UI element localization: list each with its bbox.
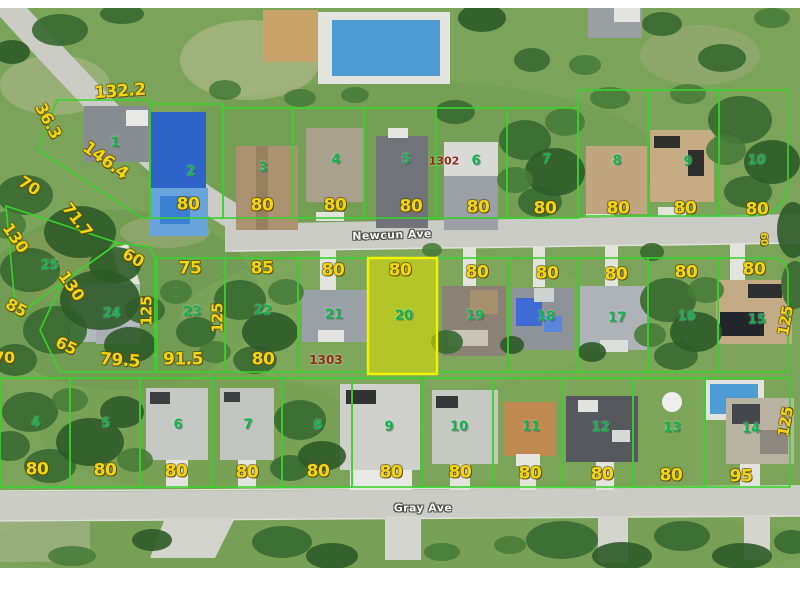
dimension-label: 79.5 [99, 351, 140, 371]
dimension-label: 80 [746, 202, 769, 219]
lot-number: 17 [608, 312, 626, 325]
lot-number: 22 [254, 305, 272, 318]
lot-number: 9 [384, 421, 393, 434]
dimension-label: 80 [591, 467, 614, 484]
lot-number: 7 [243, 419, 252, 432]
lot-number: 19 [466, 310, 484, 323]
lot-number: 20 [395, 310, 413, 323]
lot-number: 1 [110, 137, 119, 150]
dimension-label: 85 [3, 296, 29, 320]
lot-number: 14 [742, 423, 760, 436]
lot-number: 6 [173, 419, 182, 432]
dimension-label: 70 [16, 174, 43, 199]
dimension-label: 80 [536, 266, 559, 283]
dimension-label: 95 [730, 469, 753, 486]
dimension-label: 80 [236, 465, 259, 482]
lot-number: 24 [103, 308, 121, 321]
dimension-label: 80 [449, 465, 472, 482]
dimension-label: 80 [743, 262, 766, 279]
dimension-label: 80 [177, 197, 200, 214]
dimension-label: 80 [251, 198, 274, 215]
lot-number: 25 [41, 260, 59, 273]
dimension-label: 75 [179, 261, 202, 278]
dimension-label: 80 [534, 201, 557, 218]
lot-number: 5 [401, 154, 410, 167]
plat-number: 1303 [309, 354, 342, 366]
dimension-label: 125 [776, 305, 796, 337]
lot-number: 18 [537, 311, 555, 324]
dimension-label: 80 [389, 263, 412, 280]
lot-number: 9 [683, 156, 692, 169]
dimension-label: 36.3 [32, 101, 64, 142]
dimension-label: 70 [0, 350, 15, 366]
lot-number: 11 [522, 421, 540, 434]
dimension-label: 85 [251, 261, 274, 278]
lot-number: 6 [471, 155, 480, 168]
lot-number: 10 [450, 421, 468, 434]
aerial-parcel-photo: Newcun Ave Gray Ave 132.236.3146.47071.7… [0, 0, 800, 600]
street-name: Newcun Ave [352, 228, 432, 242]
lot-number: 2 [186, 166, 195, 179]
dimension-label: 80 [519, 466, 542, 483]
dimension-label: 80 [675, 265, 698, 282]
lot-number: 5 [101, 418, 110, 431]
dimension-label: 80 [400, 199, 423, 216]
dimension-label: 132.2 [94, 82, 146, 103]
dimension-label: 80 [380, 465, 403, 482]
dimension-label: 80 [165, 464, 188, 481]
lot-number: 8 [313, 420, 322, 433]
dimension-label: 91.5 [163, 352, 203, 369]
lot-number: 8 [612, 155, 621, 168]
dimension-label: 71.7 [59, 200, 95, 239]
dimension-label: 80 [607, 201, 630, 218]
dimension-label: 146.4 [79, 139, 130, 183]
lot-number: 23 [183, 306, 201, 319]
dimension-label: 130 [55, 268, 86, 303]
lot-number: 3 [258, 162, 267, 175]
dimension-label: 65 [53, 334, 79, 358]
street-name: Gray Ave [394, 503, 453, 514]
lot-number: 4 [331, 154, 340, 167]
dimension-label: 125 [140, 296, 155, 326]
dimension-label: 80 [660, 468, 683, 485]
dimension-label: 80 [605, 267, 628, 284]
dimension-label: 60 [758, 233, 768, 246]
dimension-label: 80 [466, 265, 489, 282]
dimension-label: 80 [26, 462, 49, 479]
dimension-label: 60 [120, 246, 146, 270]
dimension-label: 125 [211, 303, 226, 333]
lot-number: 16 [678, 311, 696, 324]
dimension-label: 80 [252, 352, 275, 369]
lot-number: 15 [748, 314, 766, 327]
lot-number: 7 [542, 154, 551, 167]
dimension-label: 80 [94, 463, 117, 480]
lot-number: 12 [592, 422, 610, 435]
dimension-label: 125 [776, 406, 796, 438]
dimension-label: 130 [0, 220, 31, 255]
plat-number: 1302 [429, 156, 460, 167]
lot-number: 10 [748, 155, 766, 168]
lot-number: 21 [325, 309, 343, 322]
dimension-label: 80 [467, 200, 490, 217]
dimension-label: 80 [322, 263, 345, 280]
dimension-label: 80 [674, 201, 697, 218]
lot-number: 4 [31, 417, 40, 430]
lot-number: 13 [663, 422, 681, 435]
dimension-label: 80 [307, 464, 330, 481]
labels-layer: Newcun Ave Gray Ave 132.236.3146.47071.7… [0, 0, 800, 600]
dimension-label: 80 [324, 198, 347, 215]
